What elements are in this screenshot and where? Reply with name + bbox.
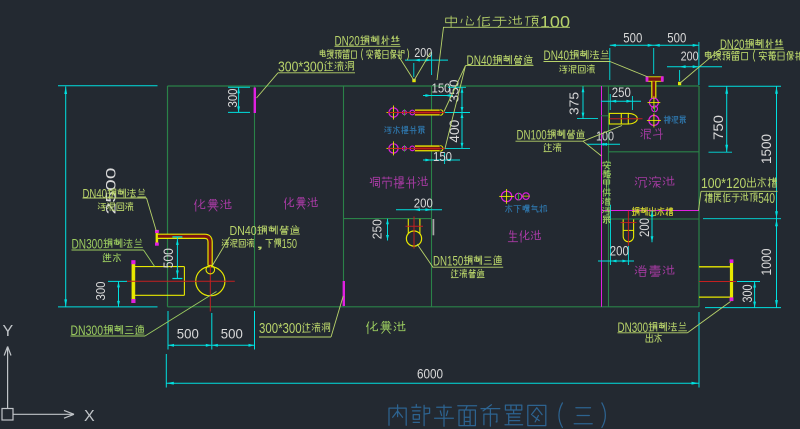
svg-text:1000: 1000	[759, 249, 774, 276]
svg-text:1500: 1500	[759, 134, 774, 164]
svg-text:750: 750	[711, 115, 726, 140]
svg-text:6000: 6000	[417, 367, 443, 382]
svg-text:540: 540	[758, 191, 775, 207]
svg-text:300: 300	[740, 285, 755, 303]
svg-text:150: 150	[433, 149, 452, 164]
svg-text:500: 500	[623, 30, 642, 45]
svg-text:DN40: DN40	[83, 186, 108, 201]
svg-text:100*120: 100*120	[701, 175, 746, 192]
svg-text:375: 375	[567, 92, 582, 115]
svg-text:500: 500	[221, 326, 243, 341]
svg-text:300*300: 300*300	[259, 321, 302, 337]
svg-text:DN100: DN100	[517, 128, 547, 143]
svg-text:200: 200	[414, 45, 432, 60]
svg-text:150: 150	[282, 236, 297, 251]
svg-text:X: X	[84, 408, 95, 425]
svg-text:200: 200	[610, 244, 629, 259]
svg-text:100: 100	[540, 13, 570, 32]
svg-text:DN40: DN40	[544, 48, 570, 63]
svg-text:500: 500	[177, 326, 199, 341]
svg-text:250: 250	[612, 85, 631, 100]
svg-text:200: 200	[414, 196, 433, 211]
svg-text:200: 200	[681, 49, 699, 64]
svg-text:Y: Y	[3, 323, 14, 340]
svg-text:300: 300	[225, 89, 240, 108]
svg-text:DN40: DN40	[230, 223, 257, 238]
svg-text:DN300: DN300	[72, 237, 104, 252]
svg-text:500: 500	[667, 30, 686, 45]
svg-text:250: 250	[370, 219, 385, 239]
svg-text:DN150: DN150	[433, 254, 464, 269]
svg-text:200: 200	[637, 218, 652, 237]
svg-text:,: ,	[255, 236, 265, 251]
svg-text:500: 500	[161, 248, 176, 268]
svg-text:300: 300	[93, 282, 108, 301]
svg-text:100: 100	[596, 128, 614, 143]
